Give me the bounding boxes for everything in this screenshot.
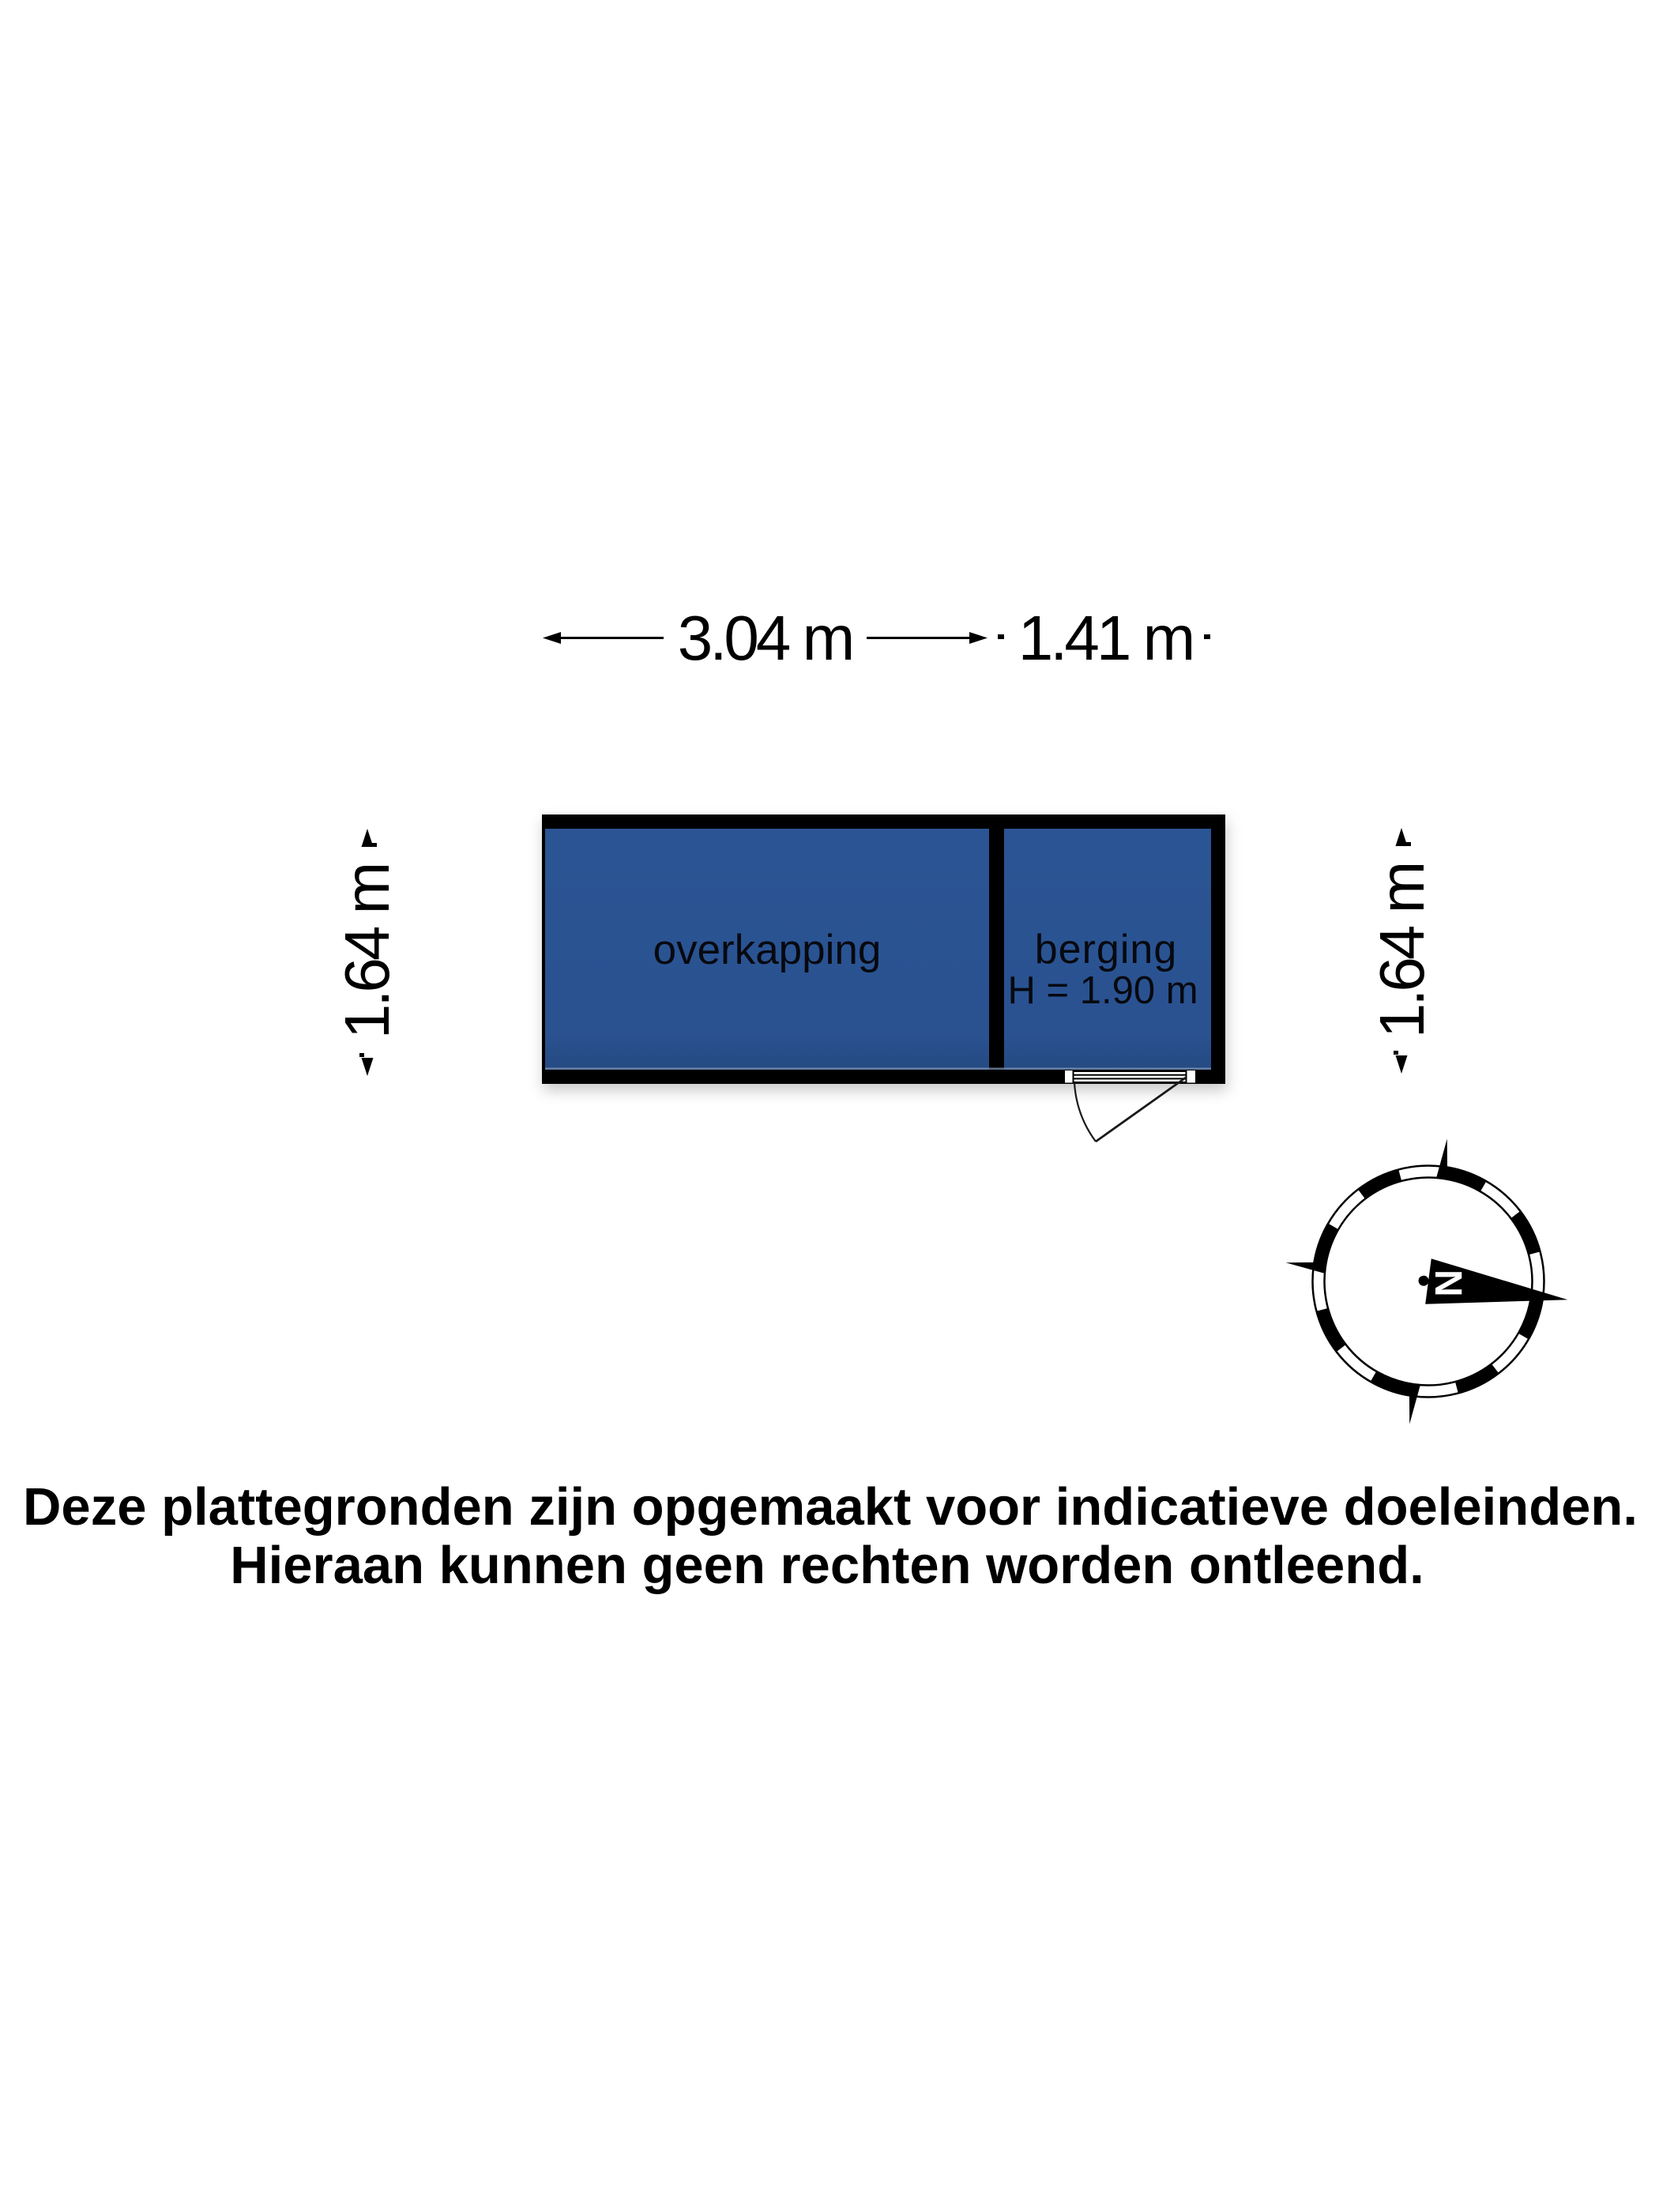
svg-text:berging: berging: [1035, 927, 1177, 972]
svg-text:H = 1.90 m: H = 1.90 m: [1007, 969, 1198, 1012]
svg-text:3.04 m: 3.04 m: [678, 603, 852, 673]
svg-text:1.64 m: 1.64 m: [1367, 864, 1437, 1039]
svg-text:Deze plattegronden zijn opgema: Deze plattegronden zijn opgemaakt voor i…: [23, 1477, 1638, 1537]
svg-text:Hieraan kunnen geen rechten wo: Hieraan kunnen geen rechten worden ontle…: [230, 1536, 1424, 1595]
svg-text:N: N: [1427, 1270, 1469, 1297]
svg-text:1.64 m: 1.64 m: [332, 865, 402, 1040]
svg-text:overkapping: overkapping: [653, 927, 882, 973]
svg-text:1.41 m: 1.41 m: [1018, 603, 1193, 673]
